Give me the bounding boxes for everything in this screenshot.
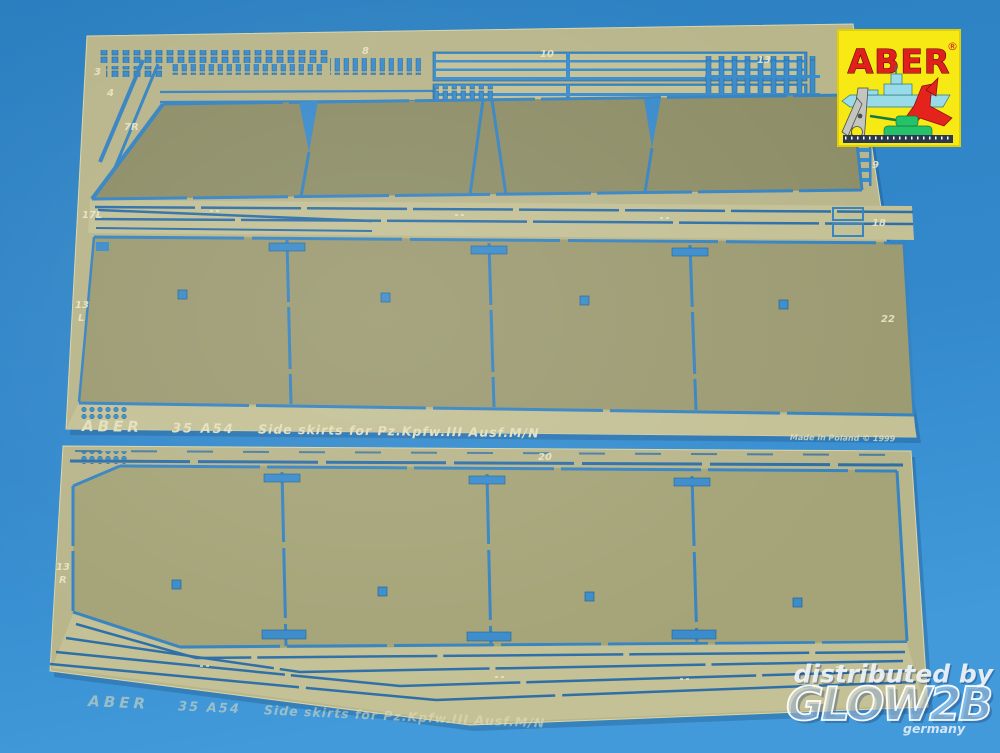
aber-logo: ABER ® bbox=[838, 30, 960, 146]
distributor-watermark: distributed by distributed by GLOW2B GLO… bbox=[786, 660, 996, 737]
product-photo: ABER 35 A54 Side skirts for Pz.Kpfw.III … bbox=[0, 0, 1000, 753]
logo-ruler-icon bbox=[843, 135, 953, 143]
watermark-country: germany bbox=[903, 721, 966, 736]
logo-registered-mark: ® bbox=[947, 40, 958, 53]
